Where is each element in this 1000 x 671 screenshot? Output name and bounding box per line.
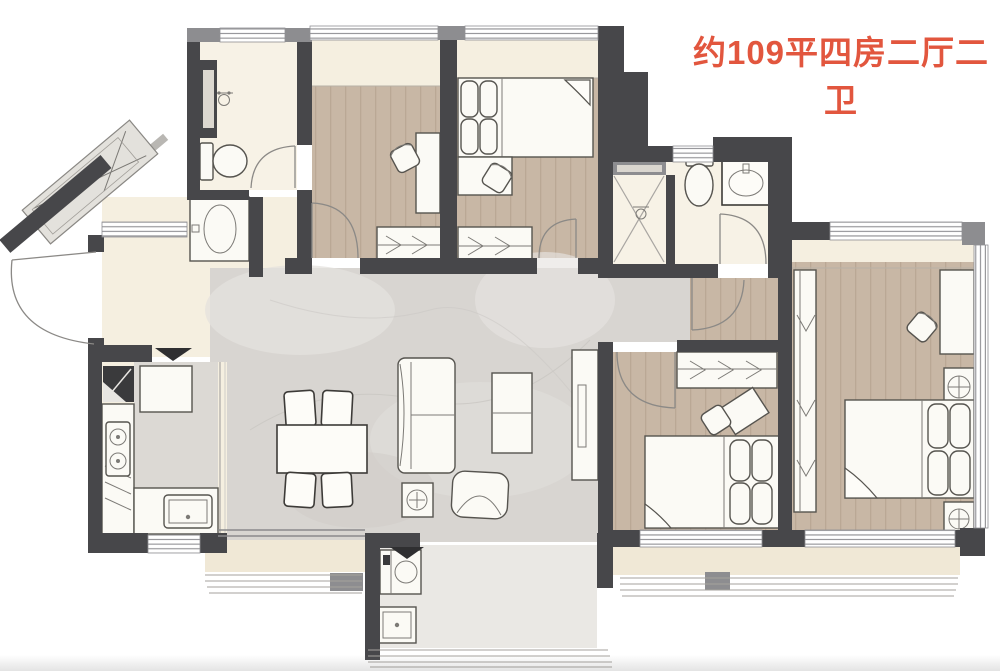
- balcony-left-floor: [205, 540, 365, 572]
- plan-title: 约109平四房二厅二卫: [688, 26, 994, 122]
- kitchen-window: [148, 535, 200, 553]
- bathroom-1-window: [220, 28, 285, 42]
- toilet: [685, 155, 713, 206]
- entry-door: [11, 252, 96, 344]
- master-north-window: [830, 222, 962, 240]
- railing-right: [620, 578, 958, 596]
- entry-window: [102, 222, 187, 237]
- stove: [106, 422, 130, 476]
- console-table: [492, 373, 532, 453]
- desk: [940, 270, 974, 354]
- photo-shadow: [0, 655, 1000, 671]
- coffee-table: [402, 483, 433, 517]
- bed: [458, 78, 593, 157]
- bedroom-2-window: [310, 26, 438, 40]
- counter-left: [102, 404, 134, 534]
- master-east-window: [974, 245, 988, 528]
- tv-cabinet: [572, 350, 598, 480]
- wardrobe: [677, 352, 777, 388]
- bedroom-4-window: [640, 530, 762, 547]
- bathroom-2-window: [673, 146, 713, 162]
- dining-table: [277, 425, 367, 473]
- kitchen-sink: [134, 488, 218, 534]
- floor-plan-page: 约109平四房二厅二卫: [0, 0, 1000, 671]
- armchair: [451, 471, 509, 520]
- desk: [416, 133, 440, 213]
- sink: [722, 158, 770, 205]
- fridge: [103, 366, 134, 402]
- master-vestibule-floor: [690, 278, 792, 342]
- toilet: [200, 143, 247, 180]
- bed: [845, 400, 974, 498]
- balcony-right-floor: [613, 547, 960, 575]
- bedroom-3-bay: [457, 40, 598, 80]
- laundry-sink: [378, 607, 416, 643]
- master-south-window: [805, 530, 955, 547]
- washing-machine: [380, 550, 421, 594]
- bedroom-2-bay: [312, 40, 440, 88]
- bed: [645, 436, 788, 528]
- vanity-sink: [190, 197, 249, 261]
- sofa: [398, 358, 455, 473]
- bedroom-3-window: [465, 26, 598, 40]
- wardrobe: [794, 270, 816, 512]
- counter: [140, 366, 192, 412]
